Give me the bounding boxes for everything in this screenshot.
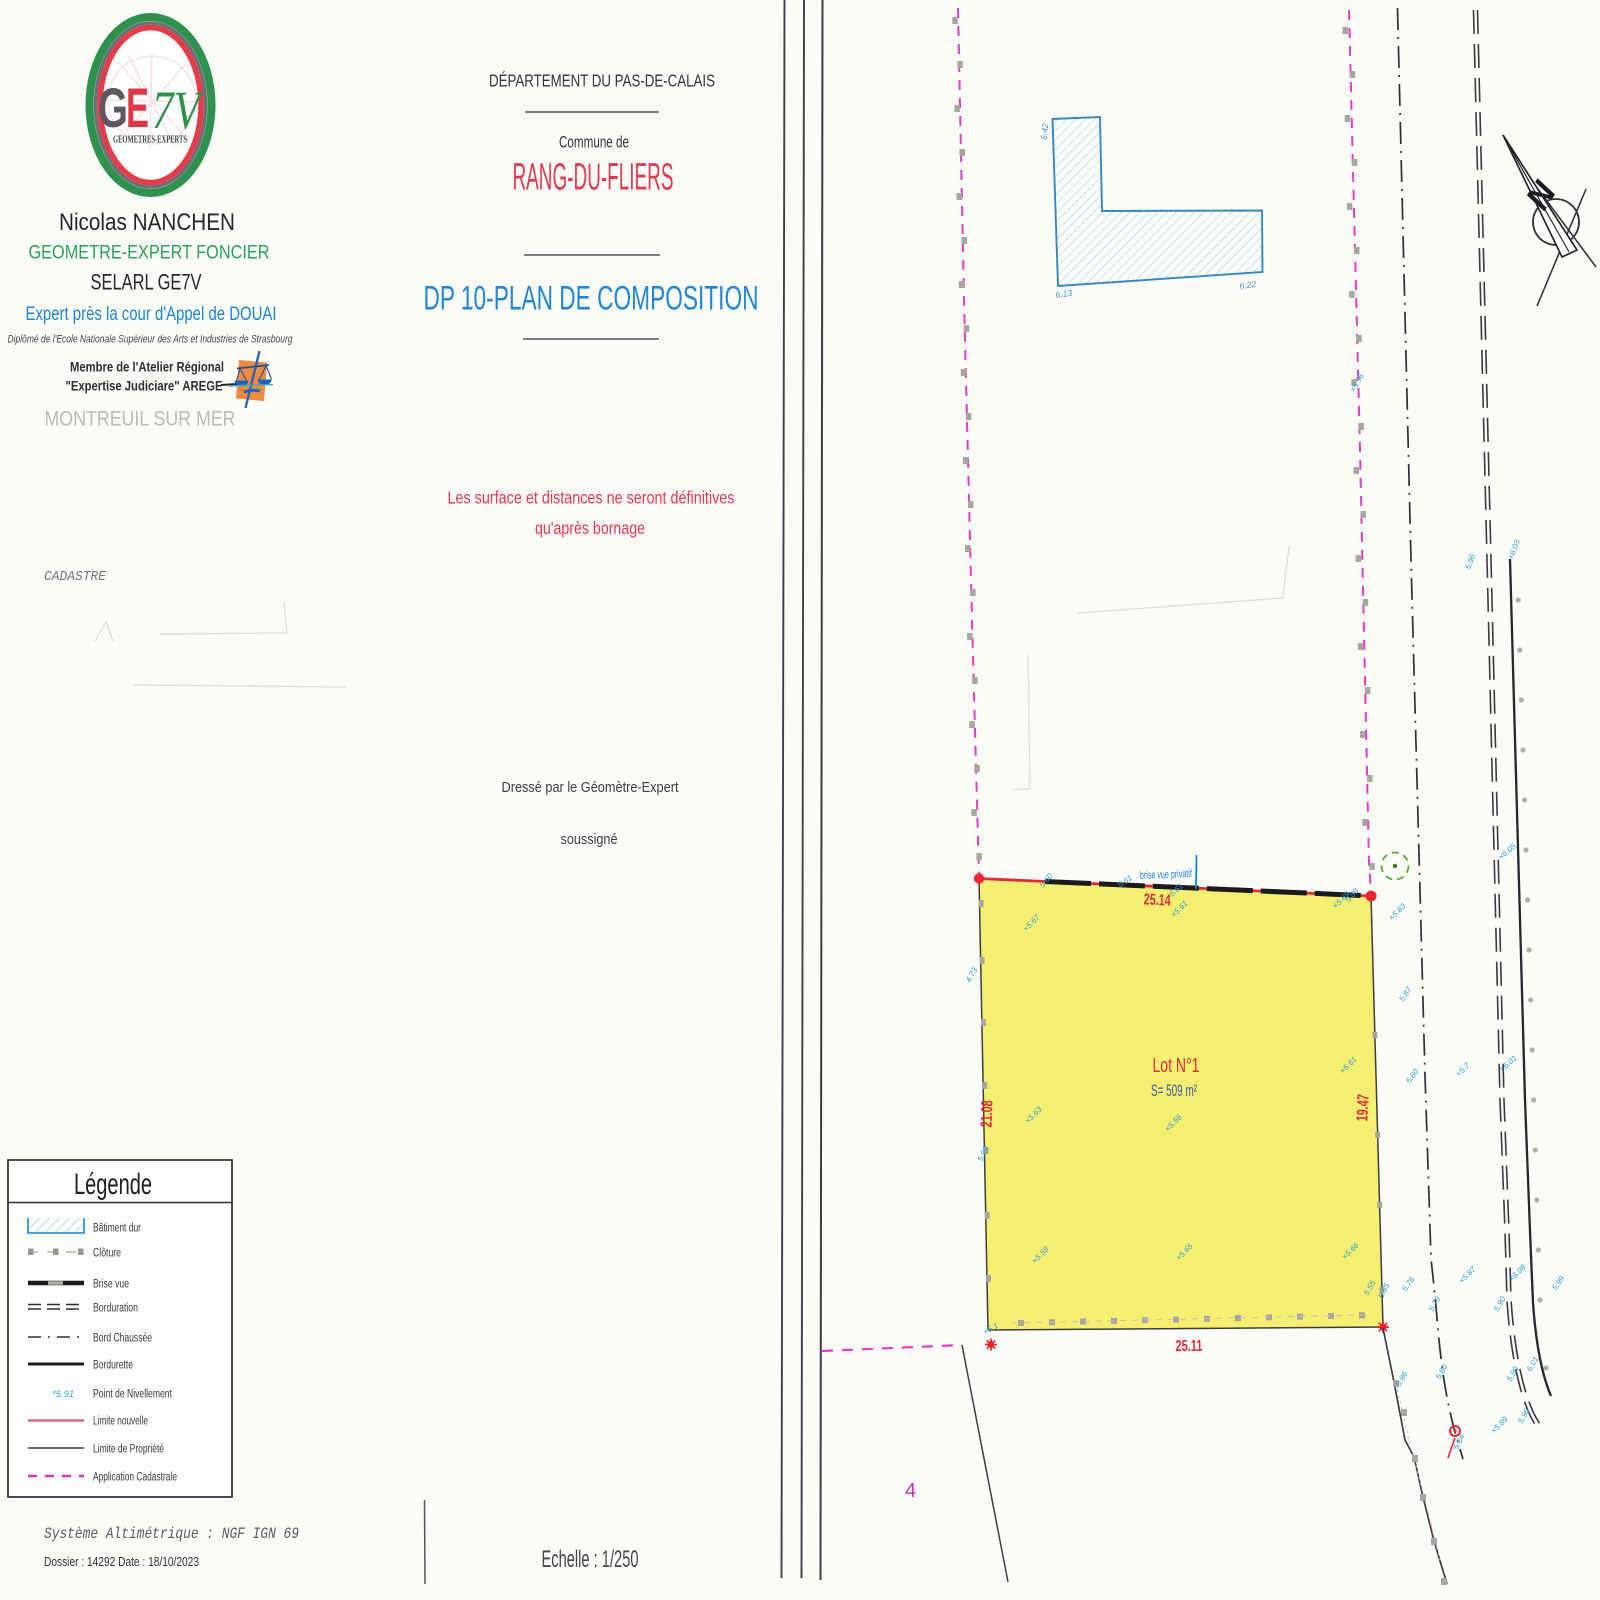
svg-text:Bâtiment dur: Bâtiment dur xyxy=(93,1223,141,1235)
svg-text:Commune de: Commune de xyxy=(559,134,629,152)
svg-text:6.42: 6.42 xyxy=(1039,123,1050,140)
svg-text:Bord Chaussée: Bord Chaussée xyxy=(93,1333,152,1345)
svg-text:21.08: 21.08 xyxy=(979,1100,997,1128)
svg-text:4: 4 xyxy=(905,1480,916,1502)
svg-text:25.11: 25.11 xyxy=(1175,1338,1202,1355)
svg-text:Point de Nivellement: Point de Nivellement xyxy=(93,1389,173,1401)
svg-text:G: G xyxy=(98,76,128,139)
svg-text:Légende: Légende xyxy=(74,1168,152,1201)
svg-text:RANG-DU-FLIERS: RANG-DU-FLIERS xyxy=(513,157,674,199)
svg-text:Bordurette: Bordurette xyxy=(93,1360,133,1372)
svg-text:19.47: 19.47 xyxy=(1354,1094,1372,1122)
svg-text:GEOMETRE-EXPERT FONCIER: GEOMETRE-EXPERT FONCIER xyxy=(29,242,270,264)
svg-text:DP 10-PLAN DE COMPOSITION: DP 10-PLAN DE COMPOSITION xyxy=(424,280,759,318)
svg-text:E: E xyxy=(126,76,149,139)
svg-text:Système Altimétrique : NGF IGN: Système Altimétrique : NGF IGN 69 xyxy=(44,1525,299,1543)
svg-text:DÉPARTEMENT DU PAS-DE-CALAIS: DÉPARTEMENT DU PAS-DE-CALAIS xyxy=(489,71,715,91)
svg-text:brise vue privatif: brise vue privatif xyxy=(1140,868,1193,882)
svg-text:Lot N°1: Lot N°1 xyxy=(1153,1054,1200,1077)
svg-text:7V: 7V xyxy=(152,80,205,140)
svg-text:S= 509 m²: S= 509 m² xyxy=(1151,1081,1197,1100)
svg-text:Application Cadastrale: Application Cadastrale xyxy=(93,1472,177,1484)
svg-text:Dossier : 14292 Date : 18/10: Dossier : 14292 Date : 18/10/2023 xyxy=(44,1554,199,1569)
svg-text:Diplômé de l'Ecole Nationale S: Diplômé de l'Ecole Nationale Supérieur d… xyxy=(8,334,293,346)
svg-text:soussigné: soussigné xyxy=(561,831,618,848)
svg-text:Dressé par le Géomètre-Expert: Dressé par le Géomètre-Expert xyxy=(502,779,680,796)
svg-text:*5.91: *5.91 xyxy=(52,1389,74,1400)
svg-text:qu'après bornage: qu'après bornage xyxy=(535,518,645,538)
svg-text:MONTREUIL SUR MER: MONTREUIL SUR MER xyxy=(45,407,236,431)
svg-text:CADASTRE: CADASTRE xyxy=(44,570,107,585)
svg-text:Echelle : 1/250: Echelle : 1/250 xyxy=(542,1546,639,1573)
svg-text:Nicolas NANCHEN: Nicolas NANCHEN xyxy=(59,209,235,236)
svg-text:SELARL GE7V: SELARL GE7V xyxy=(91,270,202,295)
svg-text:Clôture: Clôture xyxy=(93,1248,121,1260)
svg-text:Brise vue: Brise vue xyxy=(93,1279,129,1291)
svg-text:Membre de l'Atelier Régional: Membre de l'Atelier Régional xyxy=(70,360,224,375)
svg-text:"Expertise Judiciare" AREGE: "Expertise Judiciare" AREGE xyxy=(66,379,223,394)
svg-text:Limite nouvelle: Limite nouvelle xyxy=(93,1416,148,1428)
svg-text:Expert près la cour d'Appel d: Expert près la cour d'Appel de DOUAI xyxy=(26,303,277,325)
svg-text:Borduration: Borduration xyxy=(93,1303,138,1315)
svg-text:25.14: 25.14 xyxy=(1143,891,1171,909)
svg-text:Limite de Propriété: Limite de Propriété xyxy=(93,1444,164,1456)
svg-text:Les surface et distances ne se: Les surface et distances ne seront défin… xyxy=(448,488,735,508)
svg-text:GEOMETRES-EXPERTS: GEOMETRES-EXPERTS xyxy=(113,134,187,146)
